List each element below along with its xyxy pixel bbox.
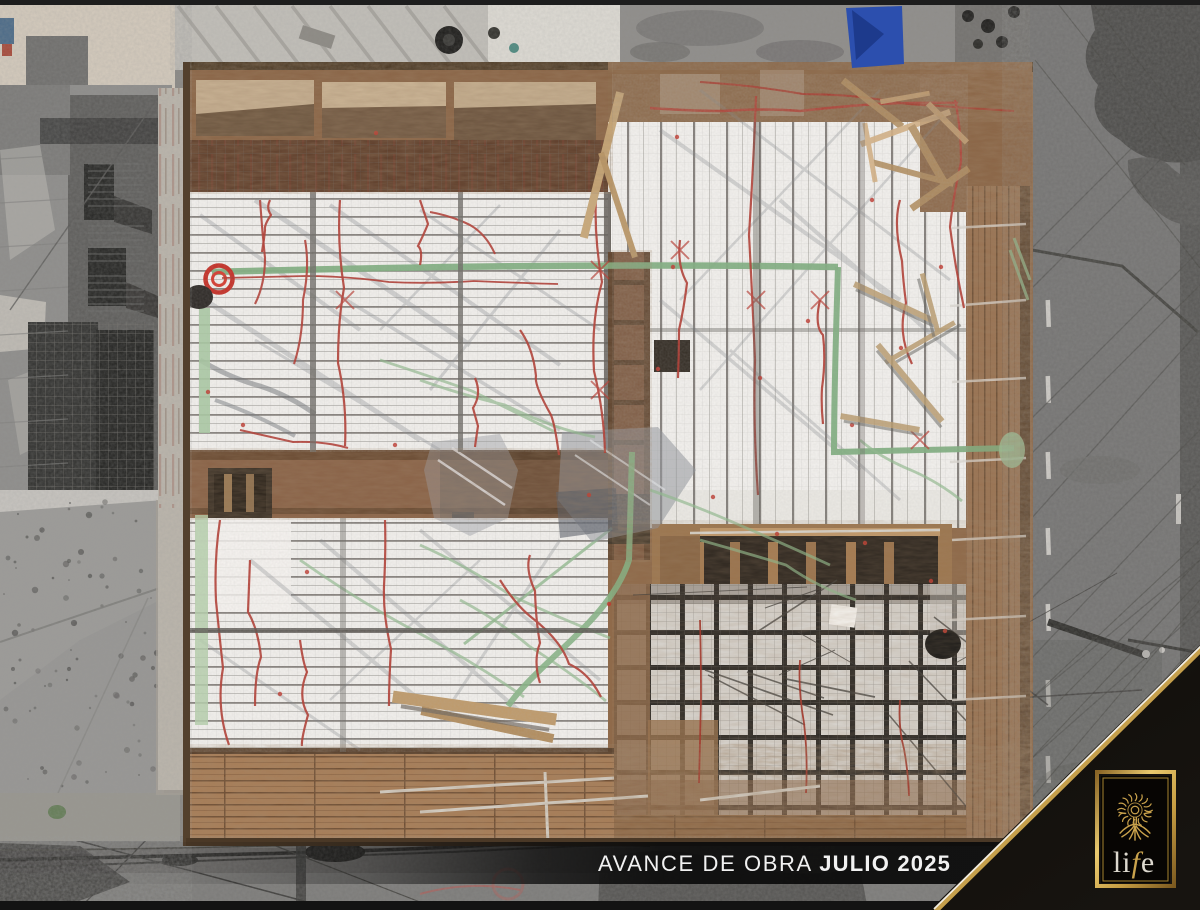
svg-text:life: life [1113, 846, 1155, 879]
svg-text:AVANCE DE OBRA JULIO 2025: AVANCE DE OBRA JULIO 2025 [598, 851, 951, 876]
